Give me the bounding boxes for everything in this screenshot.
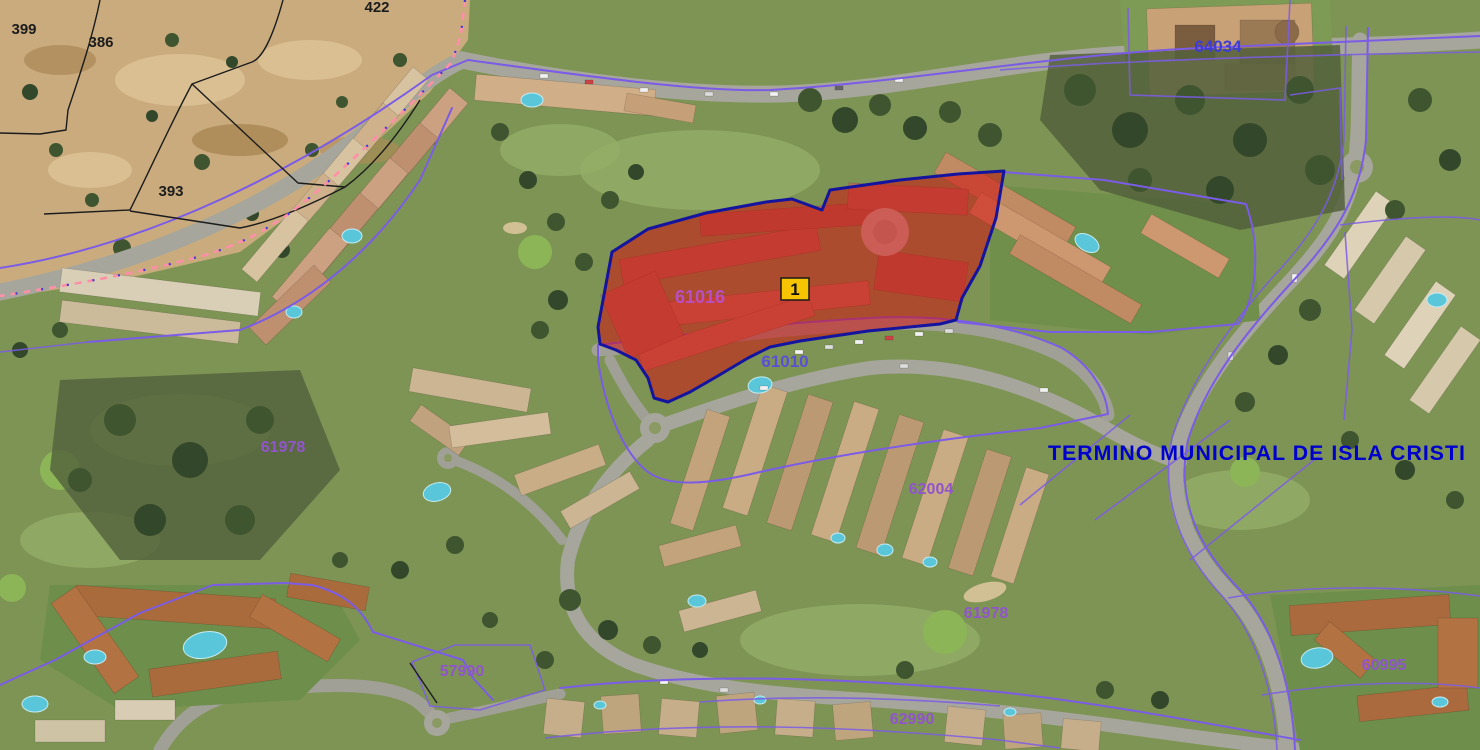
rustic-parcel-label-422: 422 [364,0,389,16]
marker-number: 1 [790,280,799,299]
rustic-parcel-label-386: 386 [88,34,113,51]
urban-parcel-label-57990: 57990 [440,663,485,680]
urban-parcel-label-61978-east: 61978 [964,605,1009,622]
municipal-boundary-label: TERMINO MUNICIPAL DE ISLA CRISTI [1048,442,1466,465]
rustic-parcel-label-393: 393 [158,183,183,200]
urban-parcel-label-61016: 61016 [675,287,725,307]
parcel-marker[interactable]: 1 [781,278,809,300]
urban-parcel-label-62004: 62004 [909,481,954,498]
urban-parcel-label-61978-west: 61978 [261,439,306,456]
aerial-map-canvas[interactable]: 1 399 386 422 393 64034 61016 61010 6197… [0,0,1480,750]
urban-parcel-label-64034: 64034 [1194,37,1242,56]
rustic-parcel-label-399: 399 [11,21,36,38]
urban-parcel-label-61010: 61010 [761,352,808,371]
urban-parcel-label-62990: 62990 [890,711,935,728]
urban-parcel-label-60995: 60995 [1362,657,1407,674]
map-viewport[interactable]: 1 399 386 422 393 64034 61016 61010 6197… [0,0,1480,750]
